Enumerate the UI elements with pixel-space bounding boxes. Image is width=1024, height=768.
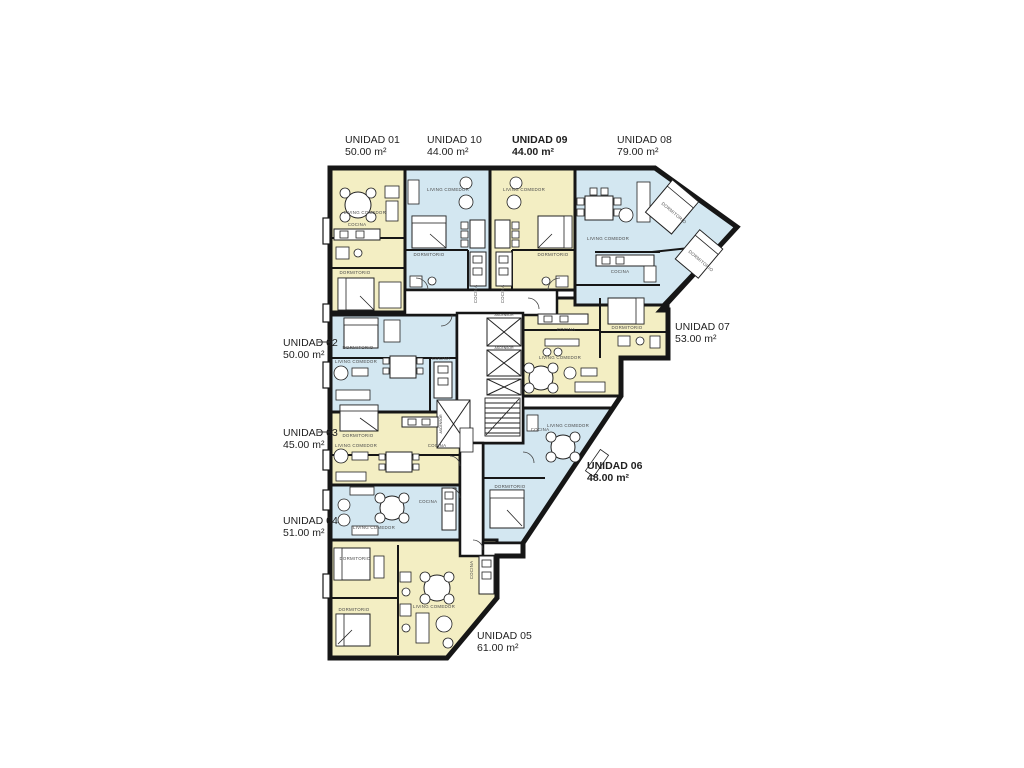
room-label: COCINA (473, 285, 478, 304)
unit-07-label: UNIDAD 07 53.00 m² (675, 321, 730, 345)
room-label: LIVING COMEDOR (503, 187, 545, 192)
room-label: LIVING COMEDOR (335, 359, 377, 364)
unit-09-label: UNIDAD 09 44.00 m² (512, 134, 568, 158)
unit-10-label: UNIDAD 10 44.00 m² (427, 134, 482, 158)
armchair-icon (459, 195, 473, 209)
room-label: DORMITORIO (538, 252, 569, 257)
svg-text:UNIDAD 03: UNIDAD 03 (283, 427, 338, 439)
room-label: DORMITORIO (339, 607, 370, 612)
armchair-icon (507, 195, 521, 209)
sofa-icon (575, 382, 605, 392)
dining-table-icon (470, 220, 485, 248)
room-label: DORMITORIO (495, 484, 526, 489)
svg-text:UNIDAD 04: UNIDAD 04 (283, 515, 338, 527)
bed-icon (412, 216, 446, 248)
svg-text:UNIDAD 05: UNIDAD 05 (477, 630, 532, 642)
svg-text:53.00 m²: 53.00 m² (675, 333, 717, 345)
elevator-icon (487, 379, 521, 395)
svg-text:UNIDAD 07: UNIDAD 07 (675, 321, 730, 333)
floor-plan: ASCENSOR ASCENSOR ASCENSOR (0, 0, 1024, 768)
armchair-icon (338, 499, 350, 511)
balcony (323, 218, 330, 244)
room-label: DORMITORIO (343, 433, 374, 438)
room-label: COCINA (348, 222, 367, 227)
bed-icon (336, 614, 370, 646)
svg-text:79.00 m²: 79.00 m² (617, 146, 659, 158)
room-label: COCINA (500, 285, 505, 304)
armchair-icon (334, 366, 348, 380)
room-label: LIVING COMEDOR (547, 423, 589, 428)
elevator-label: ASCENSOR (494, 313, 514, 317)
armchair-icon (619, 208, 633, 222)
dining-table-icon (495, 220, 510, 248)
unit-05-label: UNIDAD 05 61.00 m² (477, 630, 532, 654)
room-label: LIVING COMEDOR (344, 210, 386, 215)
svg-text:UNIDAD 08: UNIDAD 08 (617, 134, 672, 146)
svg-text:45.00 m²: 45.00 m² (283, 439, 325, 451)
dining-table-icon (390, 356, 416, 378)
unit-06-label: UNIDAD 06 48.00 m² (587, 460, 643, 484)
room-label: COCINA (419, 499, 438, 504)
svg-text:44.00 m²: 44.00 m² (427, 146, 469, 158)
elevator-icon (487, 350, 521, 376)
room-label: COCINA (469, 561, 474, 580)
sofa-icon (336, 390, 370, 400)
balcony (323, 362, 330, 388)
sofa-icon (416, 613, 429, 643)
dining-table-icon (386, 452, 412, 472)
balcony (323, 574, 330, 598)
svg-text:48.00 m²: 48.00 m² (587, 472, 630, 484)
bed-icon (340, 405, 378, 431)
hallway (460, 443, 483, 556)
room-label: LIVING COMEDOR (413, 604, 455, 609)
bed-icon (334, 548, 370, 580)
balcony (323, 490, 330, 510)
svg-text:UNIDAD 02: UNIDAD 02 (283, 337, 338, 349)
room-label: LIVING COMEDOR (353, 525, 395, 530)
unit-08-label: UNIDAD 08 79.00 m² (617, 134, 672, 158)
svg-text:44.00 m²: 44.00 m² (512, 146, 555, 158)
room-label: LIVING COMEDOR (587, 236, 629, 241)
bed-icon (338, 278, 374, 310)
room-label: COCINA (611, 269, 630, 274)
bed-icon (538, 216, 572, 248)
elevator-label: ASCENSOR (439, 414, 443, 434)
balcony (323, 304, 330, 322)
armchair-icon (436, 616, 452, 632)
balcony (323, 450, 330, 470)
svg-text:UNIDAD 09: UNIDAD 09 (512, 134, 568, 146)
svg-text:UNIDAD 01: UNIDAD 01 (345, 134, 400, 146)
corridor (405, 290, 557, 315)
armchair-icon (564, 367, 576, 379)
room-label: LIVING COMEDOR (335, 443, 377, 448)
svg-text:UNIDAD 06: UNIDAD 06 (587, 460, 643, 472)
svg-text:UNIDAD 10: UNIDAD 10 (427, 134, 482, 146)
room-label: DORMITORIO (414, 252, 445, 257)
armchair-icon (334, 449, 348, 463)
bed-icon (344, 318, 378, 348)
room-label: DORMITORIO (340, 270, 371, 275)
dining-table-icon (585, 196, 613, 220)
room-label: DORMITORIO (343, 345, 374, 350)
room-label: COCINA (432, 356, 451, 361)
stairs-icon (485, 398, 520, 436)
unit-01-label: UNIDAD 01 50.00 m² (345, 134, 400, 158)
svg-text:50.00 m²: 50.00 m² (345, 146, 387, 158)
sofa-icon (336, 472, 366, 481)
svg-text:51.00 m²: 51.00 m² (283, 527, 325, 539)
room-label: LIVING COMEDOR (427, 187, 469, 192)
elevator-label: ASCENSOR (494, 346, 514, 350)
svg-text:61.00 m²: 61.00 m² (477, 642, 519, 654)
room-label: DORMITORIO (612, 325, 643, 330)
room-label: COCINA (428, 443, 447, 448)
bed-icon (608, 298, 644, 324)
room-label: LIVING COMEDOR (539, 355, 581, 360)
room-label: COCINA (557, 327, 576, 332)
svg-text:50.00 m²: 50.00 m² (283, 349, 325, 361)
elevator-icon (487, 318, 521, 346)
kitchen-counter-icon (402, 417, 438, 427)
bed-icon (490, 490, 524, 528)
room-label: DORMITORIO (340, 556, 371, 561)
